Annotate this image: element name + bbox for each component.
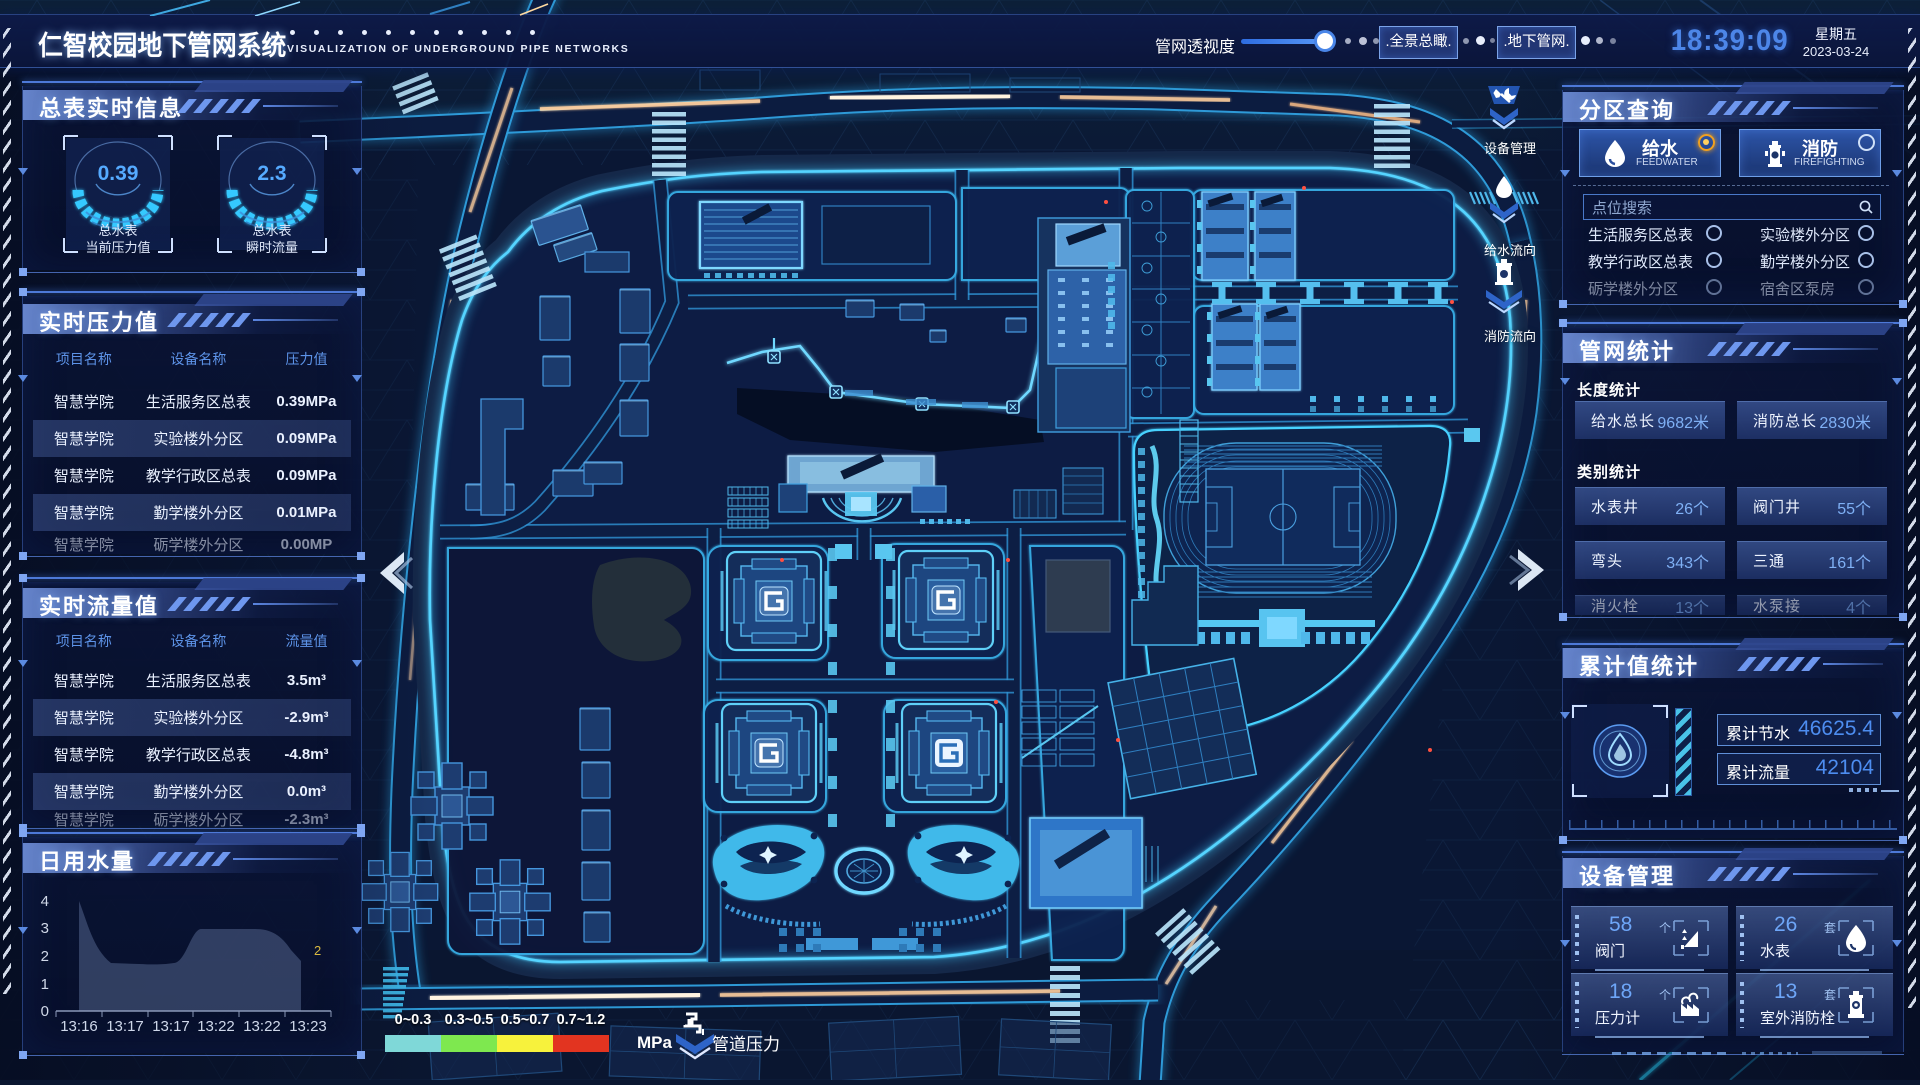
svg-text:3: 3 [41,920,49,937]
svg-text:0.39: 0.39 [98,162,139,185]
svg-text:13:23: 13:23 [289,1018,327,1035]
svg-text:4: 4 [41,893,49,910]
svg-text:0: 0 [41,1003,49,1020]
svg-text:2: 2 [41,948,49,965]
svg-text:2.3: 2.3 [257,162,286,185]
svg-text:13:17: 13:17 [106,1018,144,1035]
svg-text:13:17: 13:17 [152,1018,190,1035]
svg-text:2: 2 [314,943,321,958]
svg-text:13:16: 13:16 [60,1018,98,1035]
svg-text:1: 1 [41,976,49,993]
svg-text:13:22: 13:22 [243,1018,281,1035]
svg-text:13:22: 13:22 [197,1018,235,1035]
